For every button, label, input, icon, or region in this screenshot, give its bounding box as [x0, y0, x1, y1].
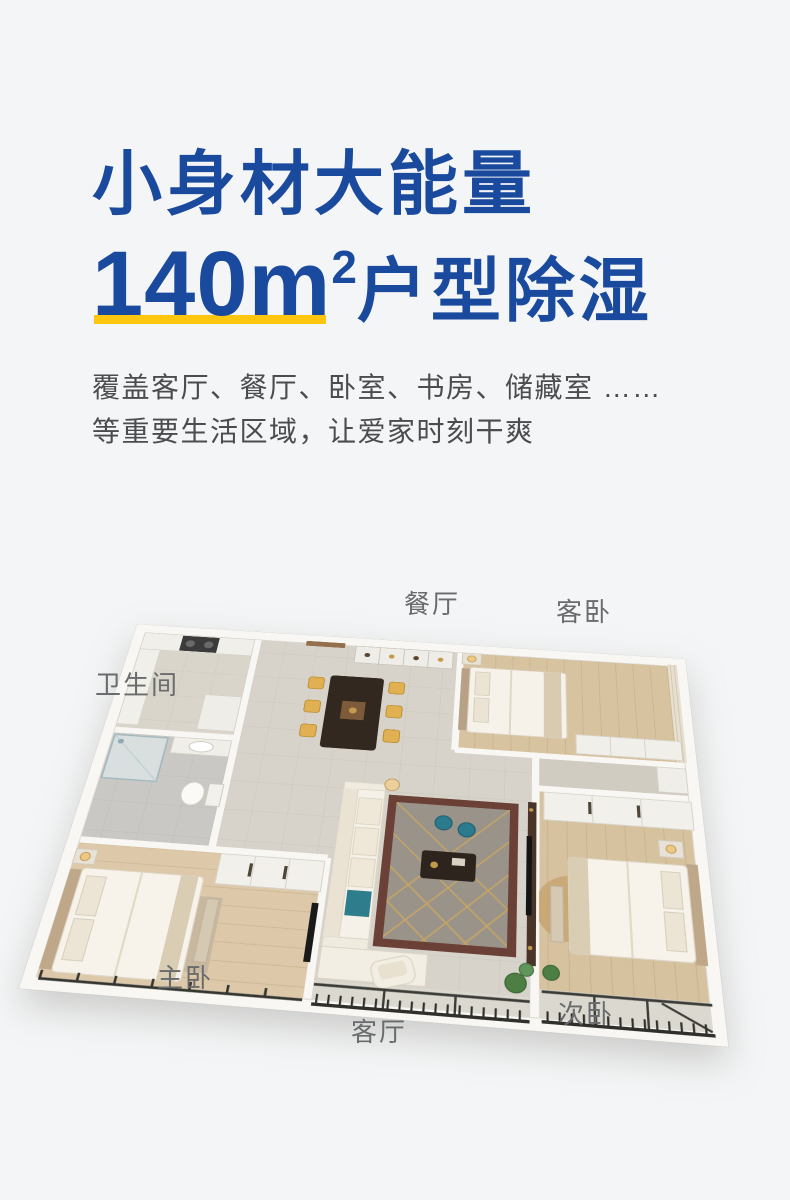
subheadline: 覆盖客厅、餐厅、卧室、书房、储藏室 …… 等重要生活区域，让爱家时刻干爽	[92, 366, 732, 454]
headline-line1: 小身材大能量	[92, 148, 732, 222]
room-label-guest-bedroom: 客卧	[556, 592, 612, 629]
hero-block: 小身材大能量 140m2户型除湿 覆盖客厅、餐厅、卧室、书房、储藏室 …… 等重…	[92, 148, 732, 454]
second-bench	[551, 886, 564, 943]
coffee-table	[420, 850, 476, 882]
room-label-dining: 餐厅	[404, 584, 460, 621]
headline-area-exponent: 2	[331, 241, 357, 293]
second-bed	[568, 855, 708, 966]
room-label-bathroom: 卫生间	[95, 665, 179, 702]
headline-line2-suffix: 户型除湿	[357, 252, 653, 330]
hallway-cabinet	[657, 767, 688, 794]
subheadline-line2: 等重要生活区域，让爱家时刻干爽	[92, 410, 732, 454]
headline-line2: 140m2户型除湿	[92, 238, 732, 330]
promo-page: 小身材大能量 140m2户型除湿 覆盖客厅、餐厅、卧室、书房、储藏室 …… 等重…	[0, 0, 790, 1200]
room-label-living-room: 客厅	[351, 1012, 407, 1049]
guest-bed	[458, 667, 567, 739]
room-label-master-bedroom: 主卧	[157, 958, 213, 995]
headline-area-number: 140m	[92, 233, 331, 335]
room-label-second-bedroom: 次卧	[558, 994, 614, 1031]
subheadline-line1: 覆盖客厅、餐厅、卧室、书房、储藏室 ……	[92, 366, 732, 410]
plant	[519, 963, 533, 977]
